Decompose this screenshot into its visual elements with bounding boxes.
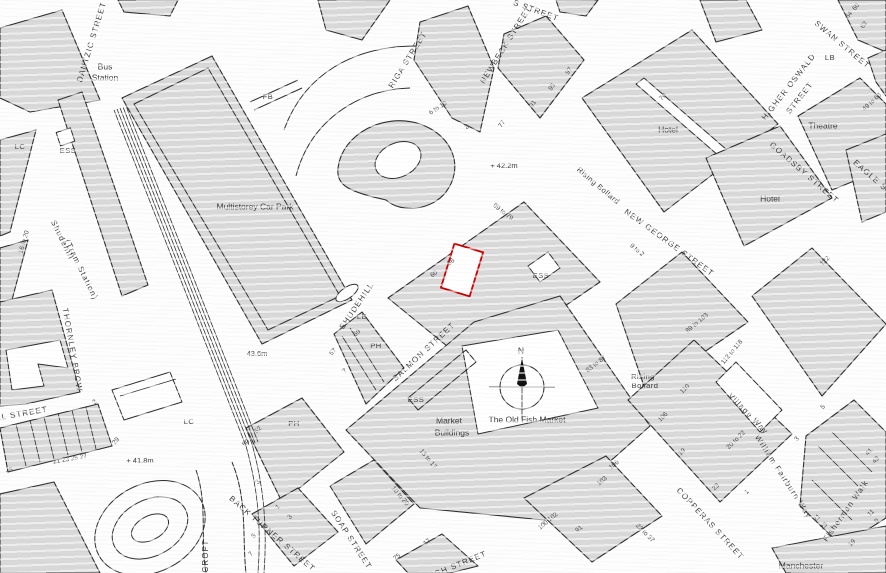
place-label: Manchester — [779, 560, 824, 570]
number-label: 112 to 118 — [720, 338, 745, 366]
street-label: CROFT — [201, 539, 210, 572]
building-block — [58, 92, 148, 296]
facility-code-label: ESS — [408, 395, 425, 404]
number-label: 7 — [247, 550, 255, 558]
map-canvas: DANTZIC STREETRIGA STREETNEWBECK STREETS… — [0, 0, 886, 573]
place-label: Station — [92, 72, 119, 82]
number-label: 5 — [819, 403, 827, 411]
facility-code-label: LC — [15, 142, 26, 151]
facility-code-label: FB — [263, 92, 274, 101]
facility-code-label: Rising — [631, 372, 655, 381]
facility-code-label: PH — [370, 341, 381, 350]
building-block — [318, 0, 390, 40]
place-label: Theatre — [808, 120, 838, 130]
bus-loop-road-edge — [284, 46, 416, 130]
building-block — [0, 482, 100, 573]
building-block — [556, 0, 598, 16]
building-block — [396, 534, 478, 573]
facility-code-label: Bollard — [632, 381, 659, 390]
facility-code-label: LB — [825, 53, 835, 62]
facility-code-label: Rising Bollard — [575, 165, 622, 206]
elevation-label: + 41.8m — [126, 456, 153, 465]
footbridge-lines — [250, 80, 302, 110]
street-label: COPPERAS STREET — [675, 486, 746, 561]
place-label: Bus — [98, 61, 113, 71]
number-label: 5 — [250, 532, 258, 540]
number-label: 9 to 2 — [628, 242, 645, 258]
number-label: 57 — [328, 347, 338, 357]
facility-code-label: ESS — [60, 146, 77, 155]
facility-code-label: LB — [357, 312, 367, 321]
elevation-label: 43.6m — [247, 349, 268, 358]
number-label: 7 — [341, 367, 349, 375]
site-plan-map: DANTZIC STREETRIGA STREETNEWBECK STREETS… — [0, 0, 886, 573]
facility-code-label: PH — [288, 419, 299, 428]
craft-centre-block — [800, 400, 886, 546]
street-label: (Tram Station) — [63, 238, 100, 301]
building-block — [414, 6, 494, 132]
number-label: 16 to 20 — [18, 229, 31, 254]
number-label: 29 — [111, 436, 121, 446]
number-label: 15 — [5, 467, 13, 474]
building-block — [700, 0, 762, 42]
place-label: N — [518, 345, 524, 355]
facility-code-label: ESS — [533, 271, 550, 280]
place-label: Market — [436, 415, 463, 425]
place-label: Buildings — [435, 427, 470, 437]
number-label: 1 — [743, 488, 751, 496]
place-label: Hotel — [658, 124, 678, 134]
facility-code-label: LC — [184, 417, 195, 426]
building-block — [752, 248, 886, 396]
place-label: Multistorey Car Park — [217, 201, 295, 211]
elevation-label: + 42.2m — [490, 161, 517, 170]
place-label: The Old Fish Market — [489, 414, 567, 424]
car-park-ramp-spiral — [78, 462, 246, 573]
tram-platform-building — [112, 372, 182, 420]
place-label: Hotel — [760, 193, 780, 203]
building-block — [118, 0, 178, 16]
number-label: 3 — [793, 435, 801, 443]
number-label: 77 — [497, 119, 507, 129]
